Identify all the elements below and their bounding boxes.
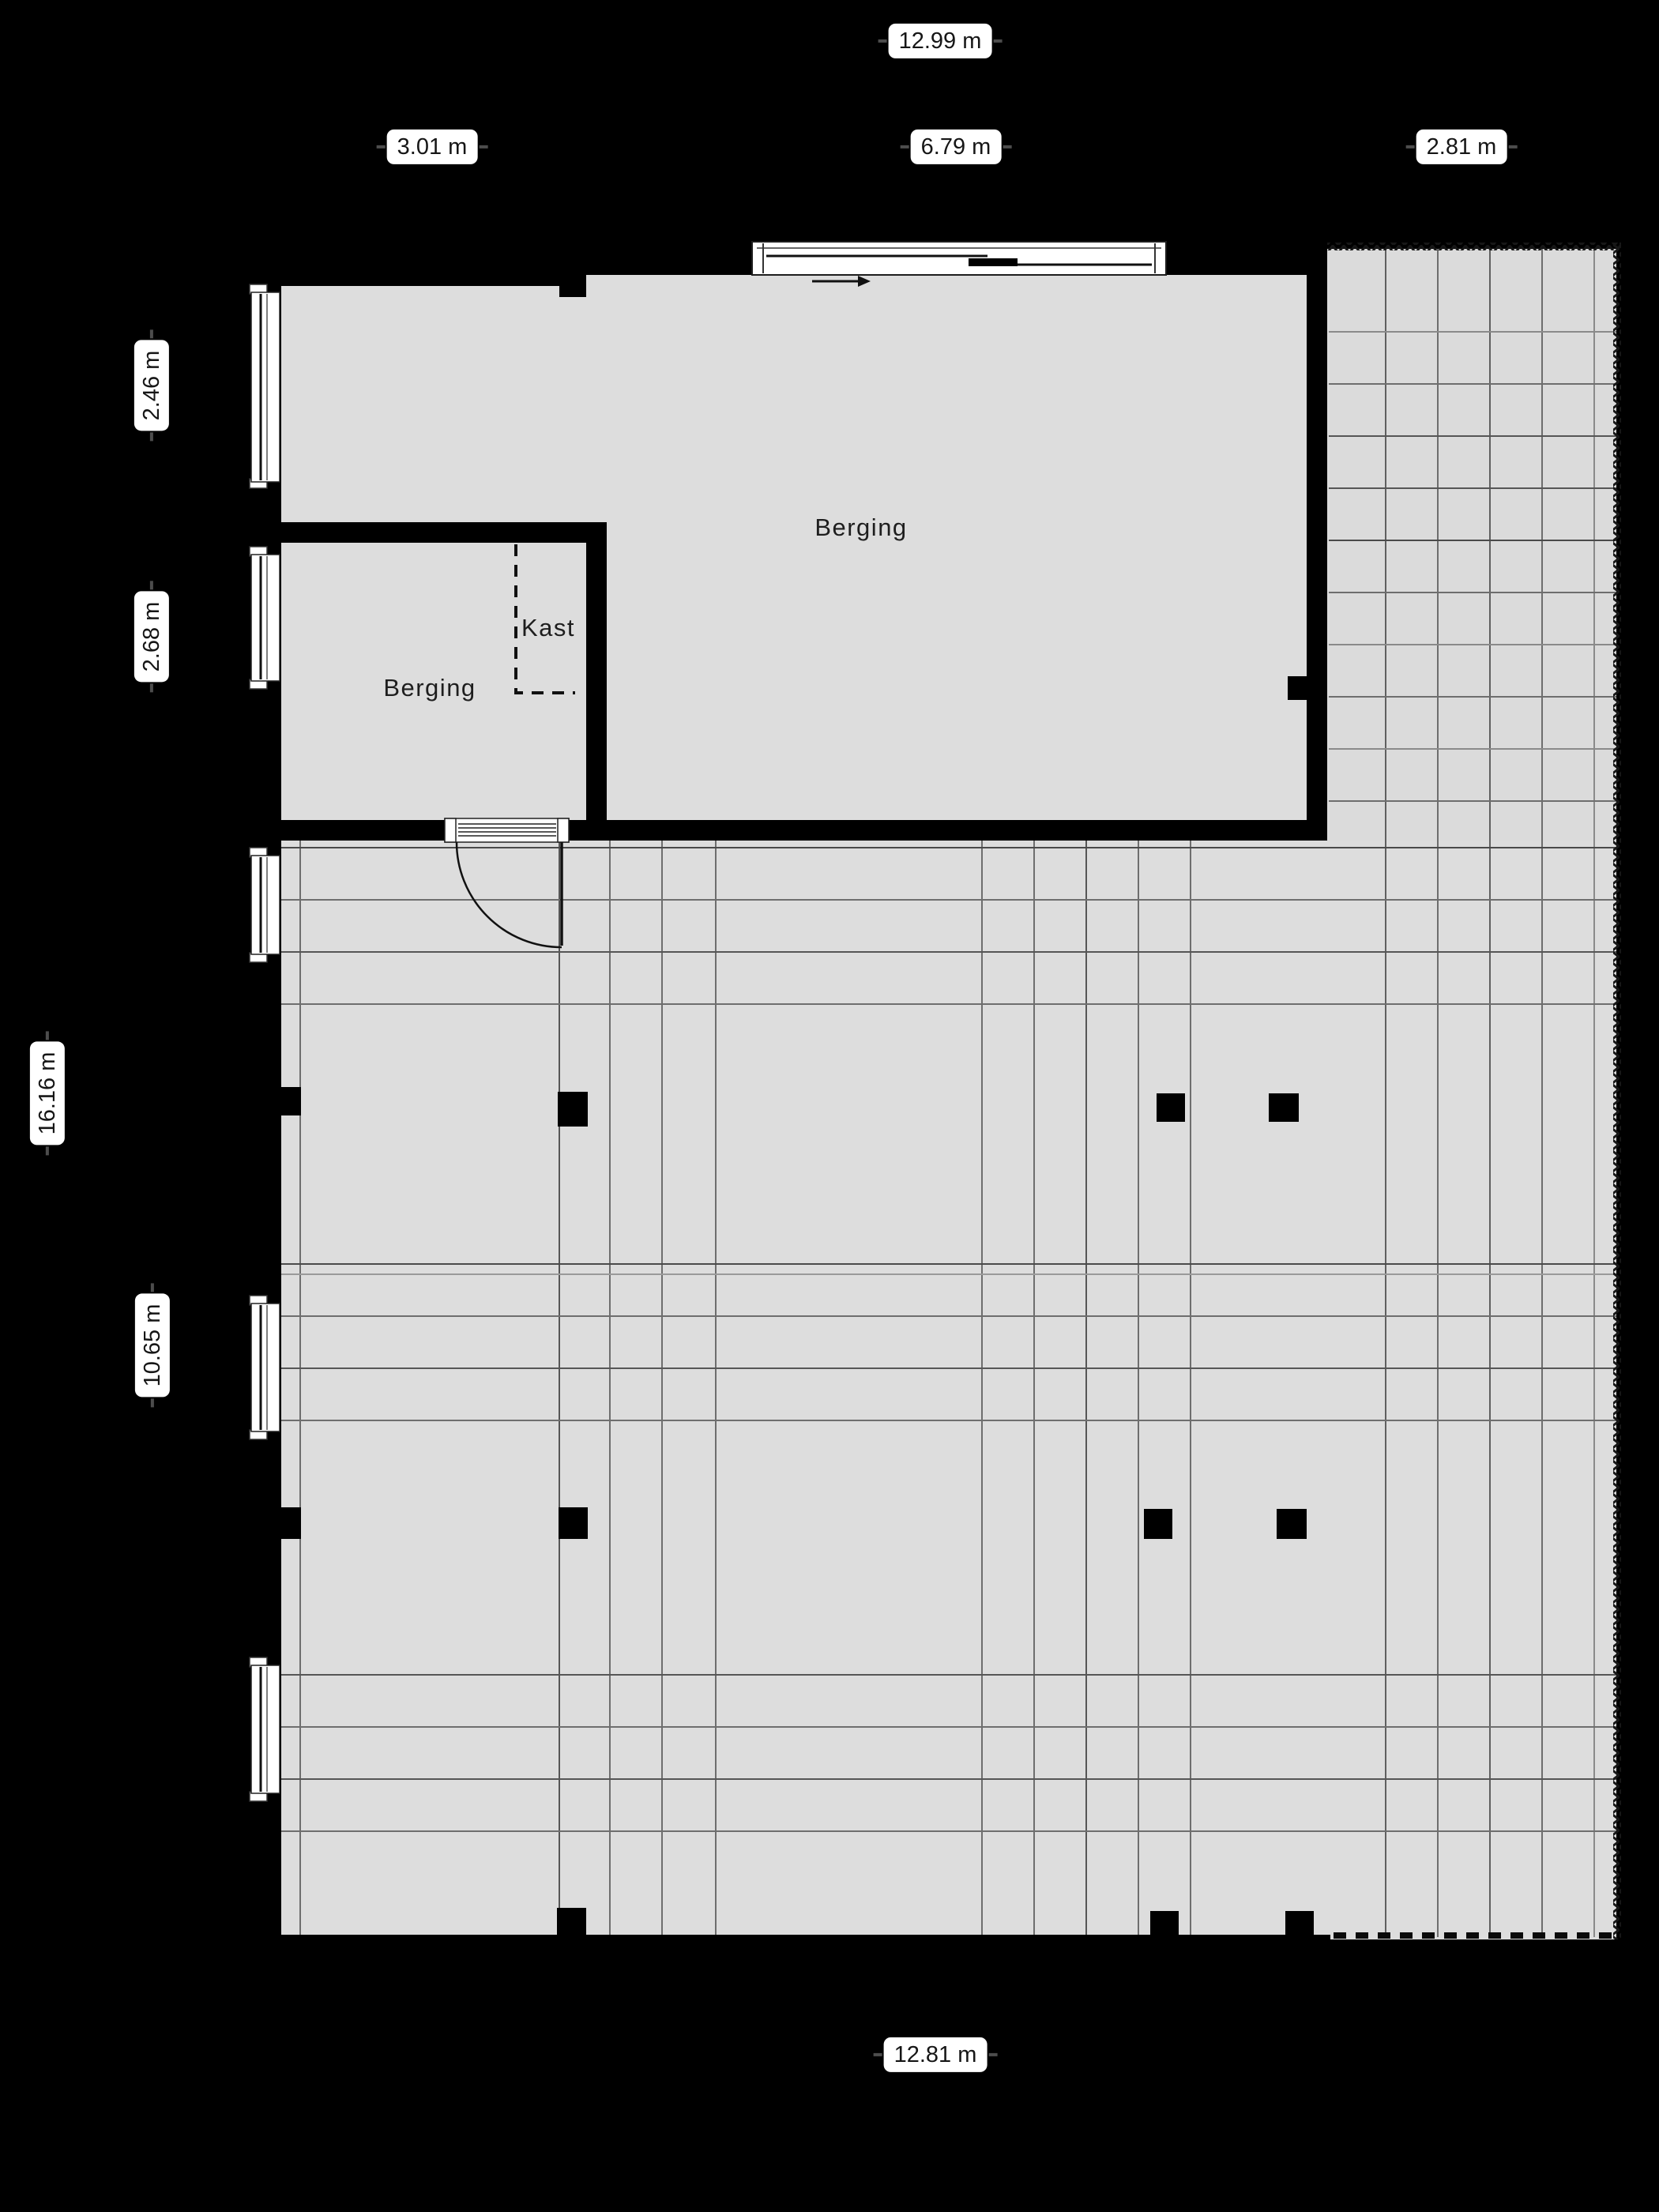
wall-nub-right [1288, 676, 1308, 700]
floor-hall [281, 841, 1616, 1939]
floor-plan-drawing [0, 0, 1659, 2212]
wall-stub-top [559, 275, 586, 297]
dimension-label-left-total: 16.16 m [30, 1042, 65, 1145]
wall-top-left-section [261, 265, 586, 286]
floor-areas [281, 249, 1616, 1939]
pillar [557, 1908, 586, 1939]
wall-stub-left-2 [274, 1507, 301, 1539]
floor-terrace [1327, 249, 1616, 841]
floor-plan: 12.99 m 3.01 m 6.79 m 2.81 m 2.46 m 2.68… [0, 0, 1659, 2212]
pillar [1157, 1093, 1185, 1122]
dimension-label-top-middle: 6.79 m [911, 130, 1002, 164]
dimension-label-left-lower: 10.65 m [135, 1294, 170, 1398]
terrace-edge-top [1327, 243, 1621, 250]
room-label-closet: Kast [521, 614, 575, 642]
pillar [1285, 1911, 1314, 1939]
dimension-label-top-left: 3.01 m [387, 130, 478, 164]
dimension-label-left-upper: 2.46 m [134, 340, 169, 431]
dimension-label-left-middle: 2.68 m [134, 592, 169, 683]
room-label-storage-small: Berging [383, 674, 476, 702]
dimension-label-top-total: 12.99 m [889, 24, 992, 58]
pillar [1269, 1093, 1299, 1122]
pillar [559, 1507, 588, 1539]
pillar [1144, 1509, 1172, 1539]
pillar [1277, 1509, 1307, 1539]
terrace-edge-right [1613, 243, 1621, 1939]
floor-upper-room [281, 273, 1307, 820]
window [250, 1296, 280, 1439]
pillar [1150, 1911, 1179, 1939]
wall-small-room-right [586, 522, 607, 841]
room-label-storage-main: Berging [814, 513, 907, 542]
wall-small-room-top [261, 522, 607, 543]
pillar [558, 1092, 588, 1127]
wall-right [1307, 265, 1327, 841]
window [250, 547, 280, 689]
window [250, 848, 280, 962]
window [250, 284, 280, 488]
dimension-label-top-right: 2.81 m [1416, 130, 1507, 164]
dimension-label-bottom-total: 12.81 m [884, 2037, 987, 2072]
wall-hall-top [261, 820, 1327, 841]
window [250, 1657, 280, 1801]
wall-stub-left-1 [274, 1087, 301, 1115]
